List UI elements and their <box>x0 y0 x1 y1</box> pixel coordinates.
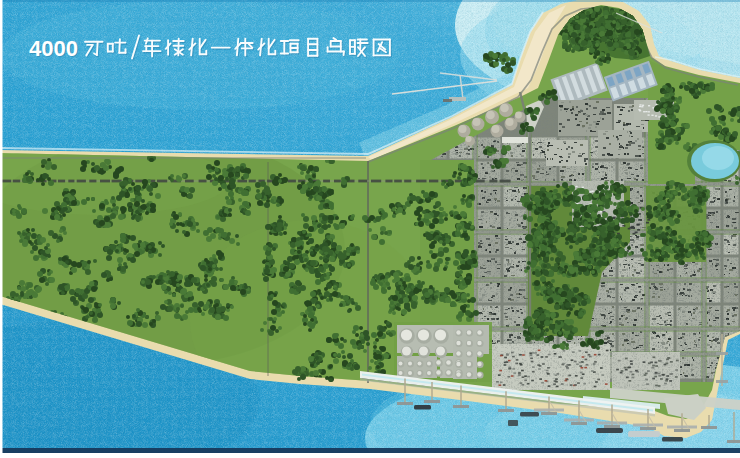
svg-text:4000: 4000 <box>29 36 78 61</box>
